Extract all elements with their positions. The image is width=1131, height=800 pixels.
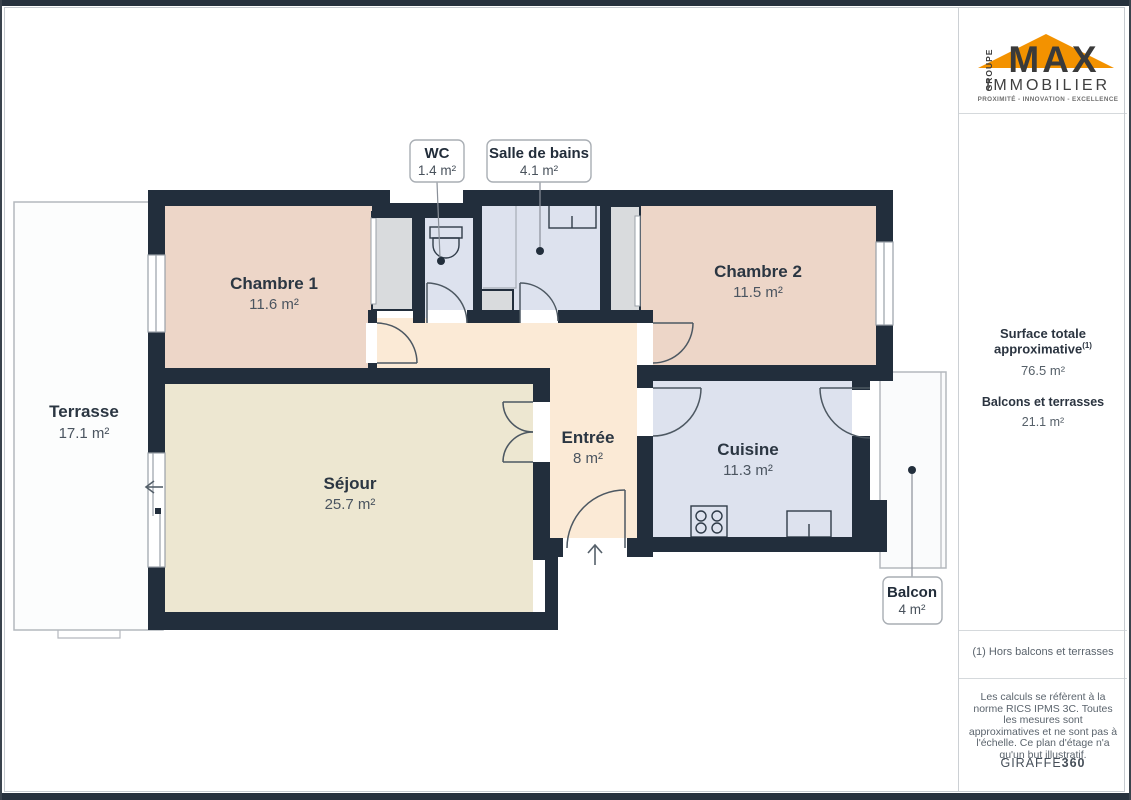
page-frame [4, 7, 1125, 792]
photo-edge-left [0, 0, 2, 800]
photo-edge-top [0, 0, 1131, 6]
photo-edge-bottom [0, 793, 1131, 800]
floorplan-page: WC 1.4 m² Salle de bains 4.1 m² Balcon 4… [0, 0, 1131, 800]
